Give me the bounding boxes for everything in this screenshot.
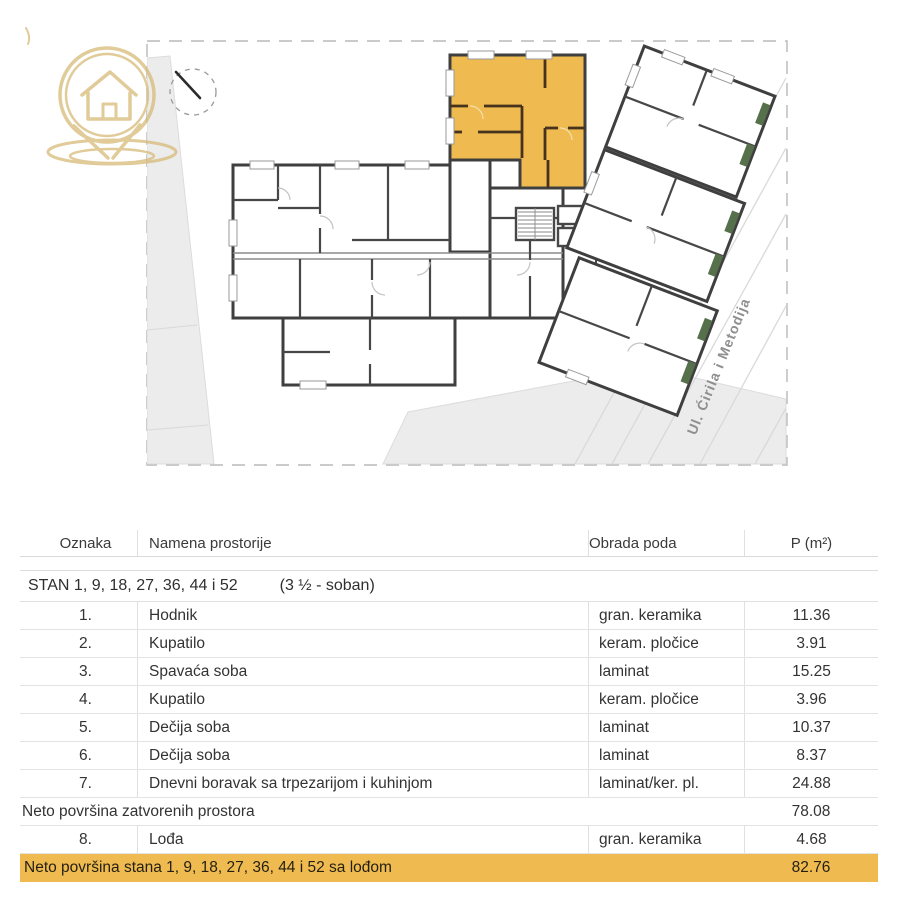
table-row: 6. Dečija soba laminat 8.37 bbox=[20, 742, 878, 770]
cell-namena: Dnevni boravak sa trpezarijom i kuhinjom bbox=[137, 770, 588, 797]
cell-obrada: gran. keramika bbox=[588, 826, 744, 853]
cell-oznaka: 1. bbox=[20, 607, 137, 625]
table-row: 1. Hodnik gran. keramika 11.36 bbox=[20, 602, 878, 630]
cell-oznaka: 6. bbox=[20, 747, 137, 765]
section-subtitle: (3 ½ - soban) bbox=[280, 577, 375, 595]
cell-namena: Hodnik bbox=[137, 602, 588, 629]
cell-p: 8.37 bbox=[744, 742, 878, 769]
cell-obrada: keram. pločice bbox=[588, 630, 744, 657]
table-row: 7. Dnevni boravak sa trpezarijom i kuhin… bbox=[20, 770, 878, 798]
subtotal-value: 78.08 bbox=[744, 803, 878, 821]
cell-p: 4.68 bbox=[744, 826, 878, 853]
total-label: Neto površina stana 1, 9, 18, 27, 36, 44… bbox=[20, 859, 744, 877]
table-row: 3. Spavaća soba laminat 15.25 bbox=[20, 658, 878, 686]
cell-namena: Kupatilo bbox=[137, 686, 588, 713]
cell-p: 24.88 bbox=[744, 770, 878, 797]
cell-p: 10.37 bbox=[744, 714, 878, 741]
floor-plan: Ul. Ćirila i Metodija bbox=[0, 0, 898, 522]
area-table: Oznaka Namena prostorije Obrada poda P (… bbox=[20, 530, 878, 882]
cell-oznaka: 5. bbox=[20, 719, 137, 737]
cell-namena: Spavaća soba bbox=[137, 658, 588, 685]
cell-obrada: laminat bbox=[588, 742, 744, 769]
table-row: 4. Kupatilo keram. pločice 3.96 bbox=[20, 686, 878, 714]
cell-namena: Dečija soba bbox=[137, 714, 588, 741]
site-plan-svg: Ul. Ćirila i Metodija bbox=[0, 0, 898, 522]
col-header-p: P (m²) bbox=[744, 530, 878, 556]
table-header-row: Oznaka Namena prostorije Obrada poda P (… bbox=[20, 530, 878, 557]
section-title: STAN 1, 9, 18, 27, 36, 44 i 52 bbox=[28, 577, 238, 595]
section-row: STAN 1, 9, 18, 27, 36, 44 i 52 (3 ½ - so… bbox=[20, 571, 878, 602]
table-row: 5. Dečija soba laminat 10.37 bbox=[20, 714, 878, 742]
table-row: 8. Lođa gran. keramika 4.68 bbox=[20, 826, 878, 854]
cell-obrada: keram. pločice bbox=[588, 686, 744, 713]
cell-p: 3.96 bbox=[744, 686, 878, 713]
cell-oznaka: 4. bbox=[20, 691, 137, 709]
brochure-page: Ul. Ćirila i Metodija bbox=[0, 0, 898, 900]
cell-oznaka: 8. bbox=[20, 831, 137, 849]
table-row: 2. Kupatilo keram. pločice 3.91 bbox=[20, 630, 878, 658]
cell-p: 3.91 bbox=[744, 630, 878, 657]
cell-namena: Dečija soba bbox=[137, 742, 588, 769]
cell-obrada: laminat bbox=[588, 658, 744, 685]
subtotal-row: Neto površina zatvorenih prostora 78.08 bbox=[20, 798, 878, 826]
cell-oznaka: 7. bbox=[20, 775, 137, 793]
total-value: 82.76 bbox=[744, 859, 878, 877]
header-gap bbox=[20, 557, 878, 571]
cell-namena: Kupatilo bbox=[137, 630, 588, 657]
cell-obrada: laminat/ker. pl. bbox=[588, 770, 744, 797]
cell-oznaka: 2. bbox=[20, 635, 137, 653]
cell-oznaka: 3. bbox=[20, 663, 137, 681]
cell-namena: Lođa bbox=[137, 826, 588, 853]
cell-obrada: gran. keramika bbox=[588, 602, 744, 629]
col-header-oznaka: Oznaka bbox=[20, 535, 137, 552]
cell-p: 11.36 bbox=[744, 602, 878, 629]
subtotal-label: Neto površina zatvorenih prostora bbox=[20, 803, 744, 821]
col-header-obrada: Obrada poda bbox=[588, 530, 744, 556]
cell-obrada: laminat bbox=[588, 714, 744, 741]
cell-p: 15.25 bbox=[744, 658, 878, 685]
total-row-highlighted: Neto površina stana 1, 9, 18, 27, 36, 44… bbox=[20, 854, 878, 882]
col-header-namena: Namena prostorije bbox=[137, 530, 588, 556]
